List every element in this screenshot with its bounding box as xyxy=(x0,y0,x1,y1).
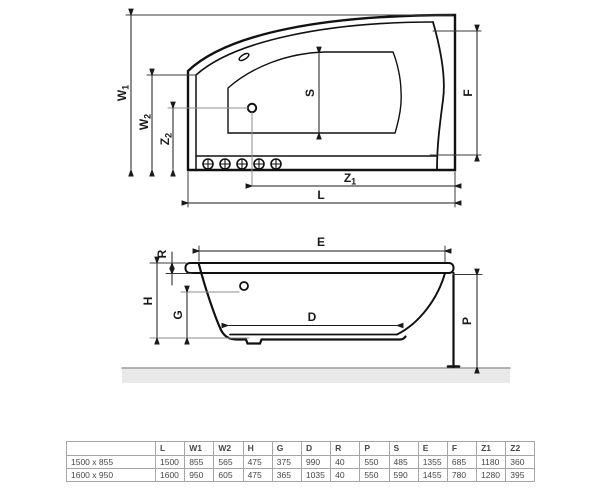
dim-label-w2: W2 xyxy=(137,114,153,130)
value-cell: 605 xyxy=(214,469,243,482)
jet-symbol xyxy=(203,159,213,169)
value-cell: 1355 xyxy=(418,456,447,469)
bathtub-technical-drawing: W1 W2 Z2 S F Z1 L xyxy=(0,0,600,500)
plan-view: W1 W2 Z2 S F Z1 L xyxy=(115,15,481,207)
value-cell: 550 xyxy=(360,469,389,482)
value-cell: 475 xyxy=(243,456,272,469)
value-cell: 1600 xyxy=(156,469,185,482)
value-cell: 1180 xyxy=(477,456,506,469)
value-cell: 395 xyxy=(506,469,535,482)
row-label: 1600 x 950 xyxy=(67,469,156,482)
header-cell: S xyxy=(389,442,418,456)
row-label: 1500 x 855 xyxy=(67,456,156,469)
header-cell: W2 xyxy=(214,442,243,456)
header-cell: P xyxy=(360,442,389,456)
dim-label-w1: W1 xyxy=(115,85,131,101)
value-cell: 780 xyxy=(447,469,476,482)
floor-band xyxy=(122,368,510,383)
tub-rim-profile xyxy=(186,263,454,273)
header-cell: E xyxy=(418,442,447,456)
header-cell: F xyxy=(447,442,476,456)
side-extension-lines xyxy=(150,246,482,338)
dim-label-z2: Z2 xyxy=(158,133,174,145)
tub-interior-right-wall xyxy=(397,273,445,335)
header-cell: G xyxy=(272,442,301,456)
header-cell: Z2 xyxy=(506,442,535,456)
value-cell: 550 xyxy=(360,456,389,469)
value-cell: 990 xyxy=(301,456,330,469)
value-cell: 475 xyxy=(243,469,272,482)
dim-label-g: G xyxy=(171,310,185,319)
value-cell: 365 xyxy=(272,469,301,482)
jet-symbol xyxy=(271,159,281,169)
dim-label-r: R xyxy=(155,249,169,258)
value-cell: 590 xyxy=(389,469,418,482)
header-cell: W1 xyxy=(185,442,214,456)
value-cell: 375 xyxy=(272,456,301,469)
dim-label-z1: Z1 xyxy=(344,171,356,187)
jet-symbol xyxy=(254,159,264,169)
header-cell xyxy=(67,442,156,456)
value-cell: 565 xyxy=(214,456,243,469)
value-cell: 40 xyxy=(331,469,360,482)
table-row: 1600 x 950 1600 950 605 475 365 1035 40 … xyxy=(67,469,535,482)
dim-label-f: F xyxy=(461,89,475,96)
value-cell: 855 xyxy=(185,456,214,469)
dim-label-e: E xyxy=(317,235,325,249)
jets-row xyxy=(203,159,281,169)
table-header-row: L W1 W2 H G D R P S E F Z1 Z2 xyxy=(67,442,535,456)
dim-label-s: S xyxy=(303,89,317,97)
side-view: R E H G D P xyxy=(122,235,510,383)
value-cell: 1280 xyxy=(477,469,506,482)
drain-hole xyxy=(248,104,256,112)
dim-label-p: P xyxy=(460,317,474,325)
value-cell: 950 xyxy=(185,469,214,482)
rim-inner-right-edge xyxy=(433,22,444,170)
plan-extension-lines xyxy=(126,15,481,207)
jet-symbol xyxy=(220,159,230,169)
dim-label-l: L xyxy=(317,188,324,202)
value-cell: 1500 xyxy=(156,456,185,469)
plan-dimension-lines xyxy=(131,16,477,203)
dimensions-table: L W1 W2 H G D R P S E F Z1 Z2 1500 x 855… xyxy=(66,441,535,482)
header-cell: H xyxy=(243,442,272,456)
value-cell: 685 xyxy=(447,456,476,469)
value-cell: 40 xyxy=(331,456,360,469)
tub-bottom-profile xyxy=(199,265,406,344)
value-cell: 1035 xyxy=(301,469,330,482)
drawing-svg: W1 W2 Z2 S F Z1 L xyxy=(0,0,600,435)
header-cell: Z1 xyxy=(477,442,506,456)
value-cell: 1455 xyxy=(418,469,447,482)
overflow-hole-side xyxy=(240,282,248,290)
header-cell: L xyxy=(156,442,185,456)
dim-label-d: D xyxy=(308,310,317,324)
jet-symbol xyxy=(237,159,247,169)
table-row: 1500 x 855 1500 855 565 475 375 990 40 5… xyxy=(67,456,535,469)
overflow-hole xyxy=(238,52,250,62)
header-cell: D xyxy=(301,442,330,456)
dim-label-h: H xyxy=(141,297,155,306)
header-cell: R xyxy=(331,442,360,456)
value-cell: 485 xyxy=(389,456,418,469)
value-cell: 360 xyxy=(506,456,535,469)
